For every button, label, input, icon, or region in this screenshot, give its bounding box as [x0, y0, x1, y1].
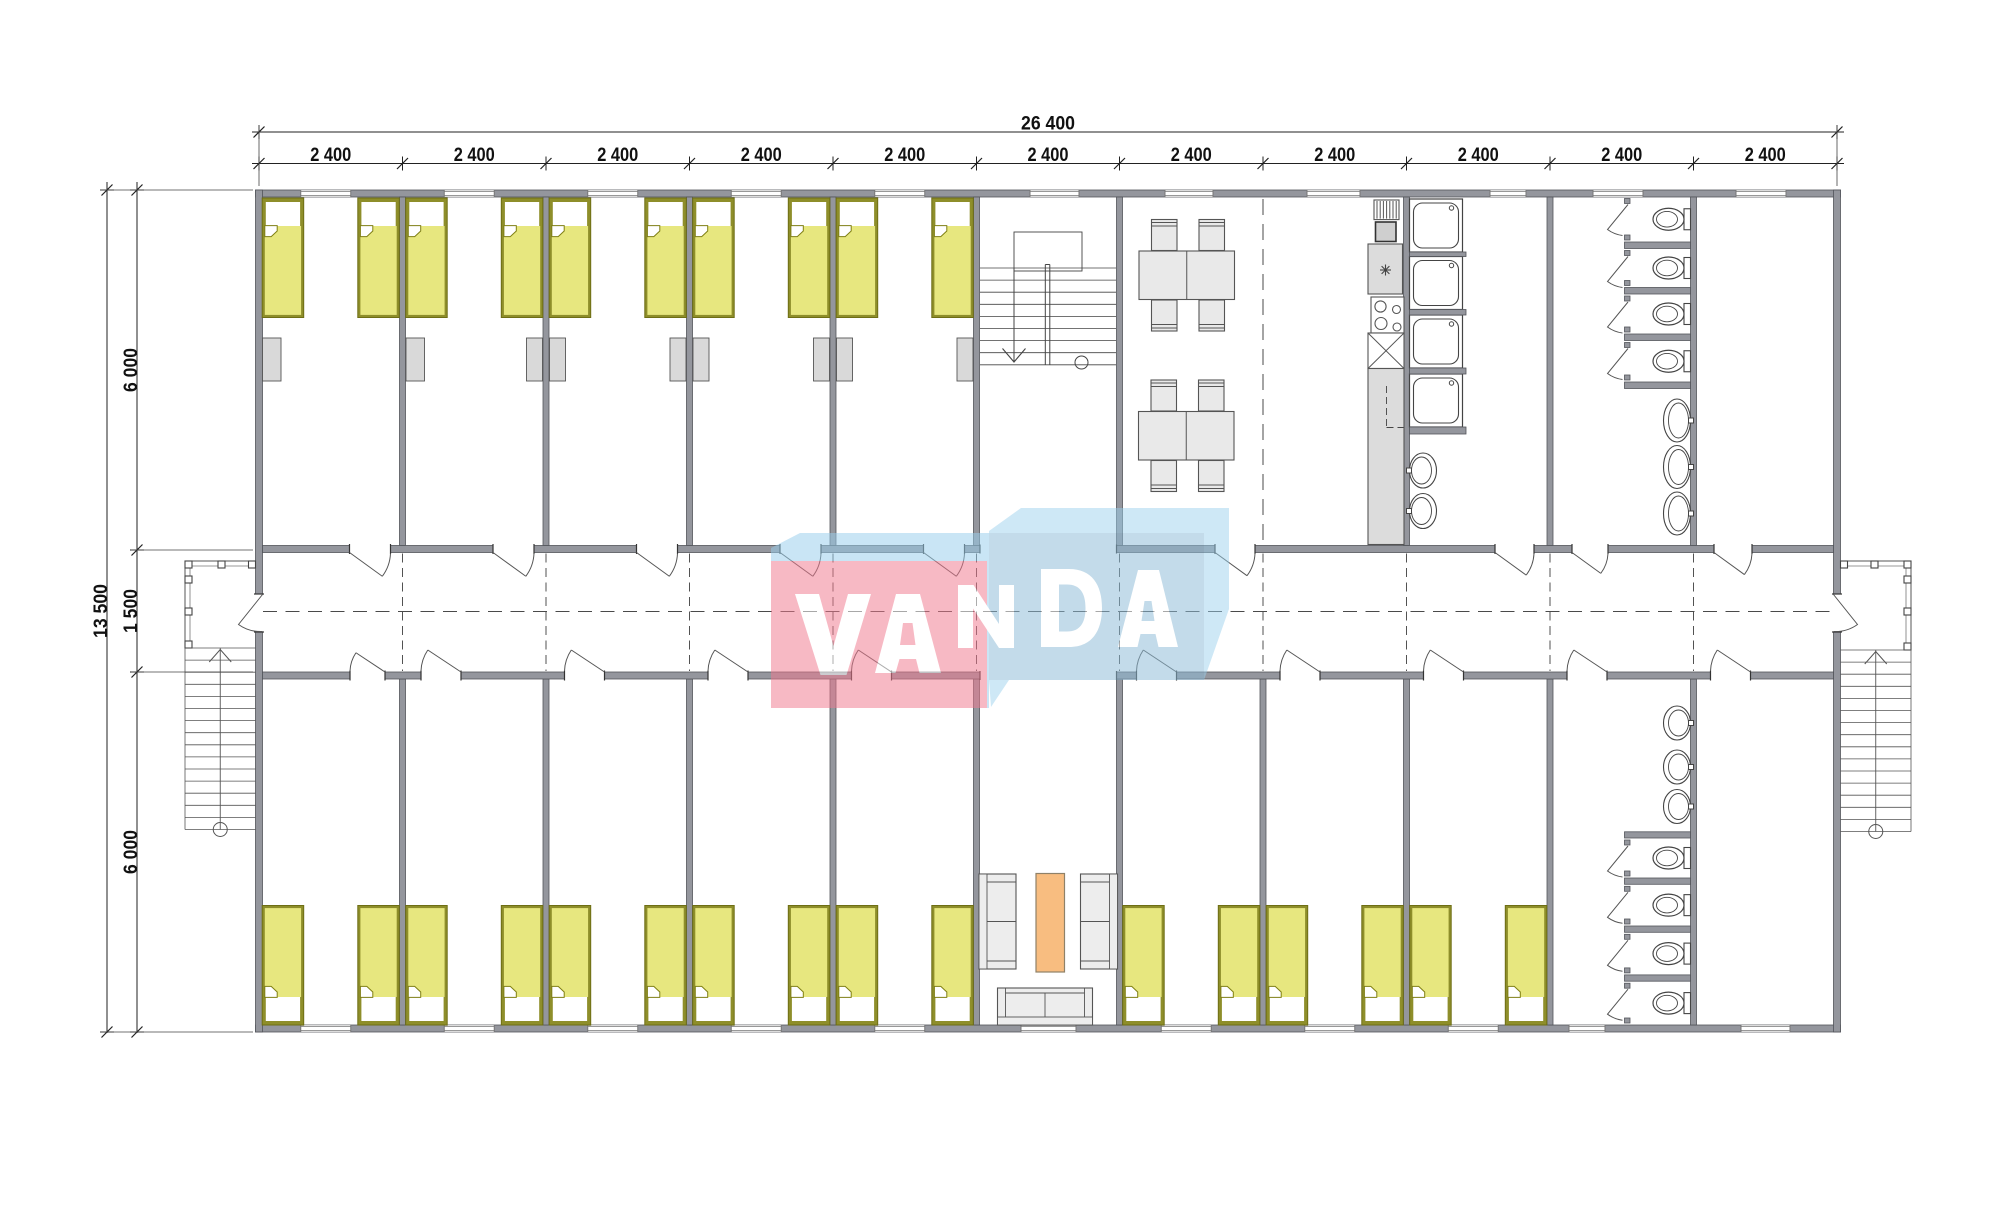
svg-text:6 000: 6 000: [121, 830, 142, 874]
svg-text:2 400: 2 400: [597, 145, 638, 166]
svg-text:6 000: 6 000: [121, 348, 142, 392]
svg-text:2 400: 2 400: [741, 145, 782, 166]
svg-text:2 400: 2 400: [1458, 145, 1499, 166]
svg-text:2 400: 2 400: [1745, 145, 1786, 166]
svg-text:2 400: 2 400: [1171, 145, 1212, 166]
svg-text:2 400: 2 400: [1314, 145, 1355, 166]
svg-text:2 400: 2 400: [1028, 145, 1069, 166]
svg-text:1 500: 1 500: [121, 589, 142, 633]
svg-text:2 400: 2 400: [310, 145, 351, 166]
svg-text:13 500: 13 500: [91, 584, 112, 638]
svg-text:2 400: 2 400: [454, 145, 495, 166]
svg-text:26 400: 26 400: [1021, 114, 1075, 135]
svg-text:2 400: 2 400: [1601, 145, 1642, 166]
svg-text:2 400: 2 400: [884, 145, 925, 166]
